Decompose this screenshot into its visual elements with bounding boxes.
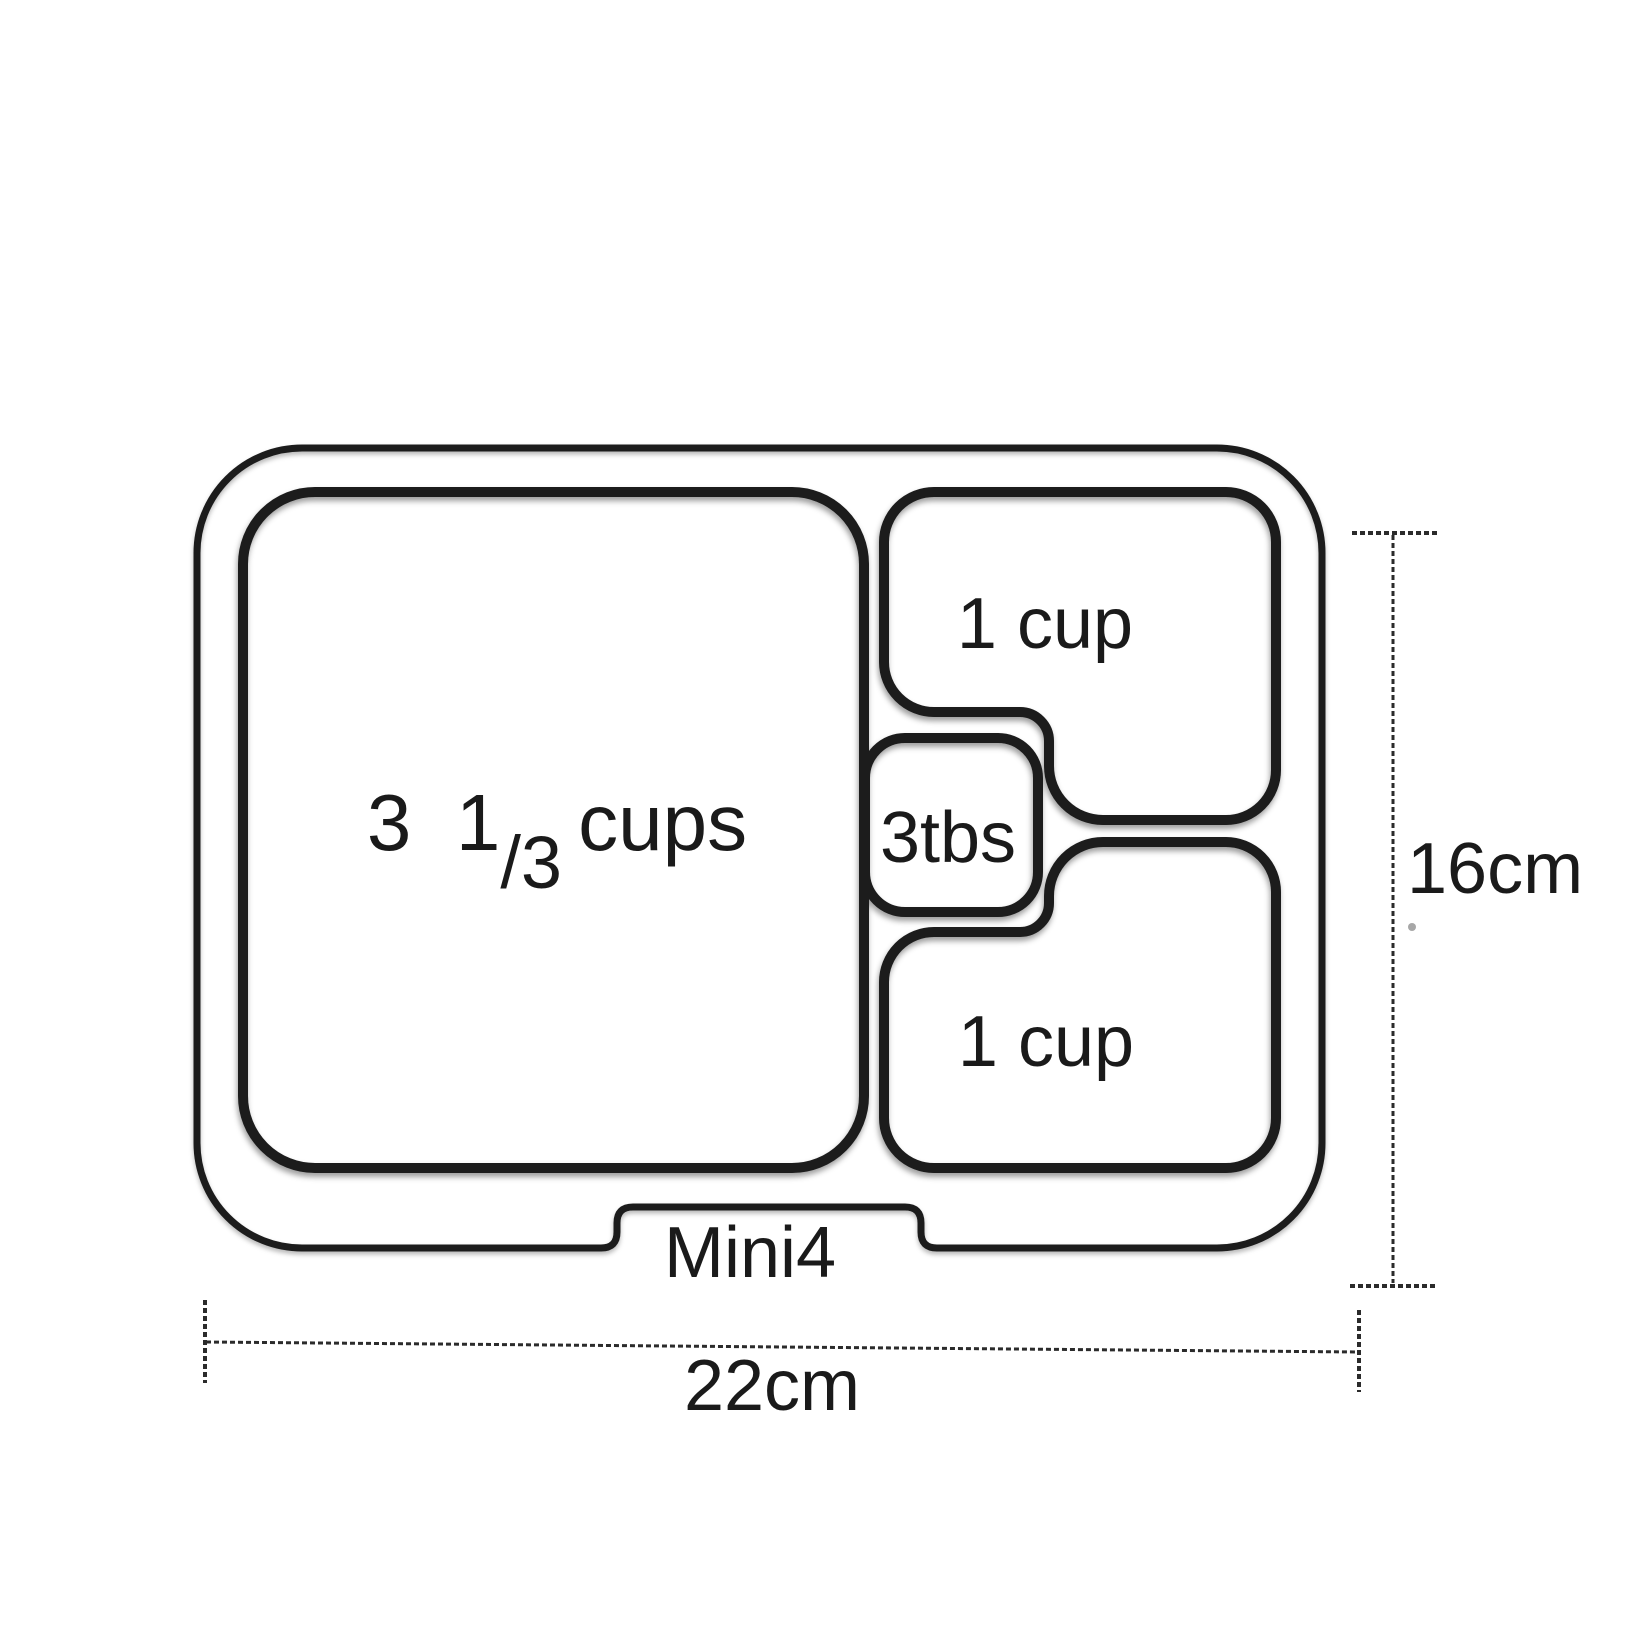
tray-diagram-svg: 3 1/3cups 1 cup 3tbs 1 cup Mini4 16cm 22…	[0, 0, 1652, 1652]
tray-outline-group	[197, 448, 1322, 1248]
width-dimension-label: 22cm	[684, 1346, 860, 1426]
product-name-label: Mini4	[664, 1213, 836, 1293]
bottom-right-compartment-label: 1 cup	[958, 1002, 1134, 1082]
lunchbox-tray-diagram: 3 1/3cups 1 cup 3tbs 1 cup Mini4 16cm 22…	[0, 0, 1652, 1652]
height-dimension-label: 16cm	[1407, 829, 1583, 909]
main-label-unit: cups	[578, 778, 747, 867]
small-center-compartment-label: 3tbs	[880, 798, 1016, 878]
main-label-fraction: /3	[500, 821, 562, 904]
tray-outline	[197, 448, 1322, 1248]
main-compartment-label: 3 1/3cups	[367, 778, 747, 904]
top-right-compartment-label: 1 cup	[957, 584, 1133, 664]
width-dimension-group: 22cm	[205, 1300, 1359, 1426]
height-dimension-group: 16cm	[1350, 533, 1583, 1286]
artifact-speck	[1408, 923, 1416, 931]
main-label-whole: 3 1	[367, 778, 500, 867]
